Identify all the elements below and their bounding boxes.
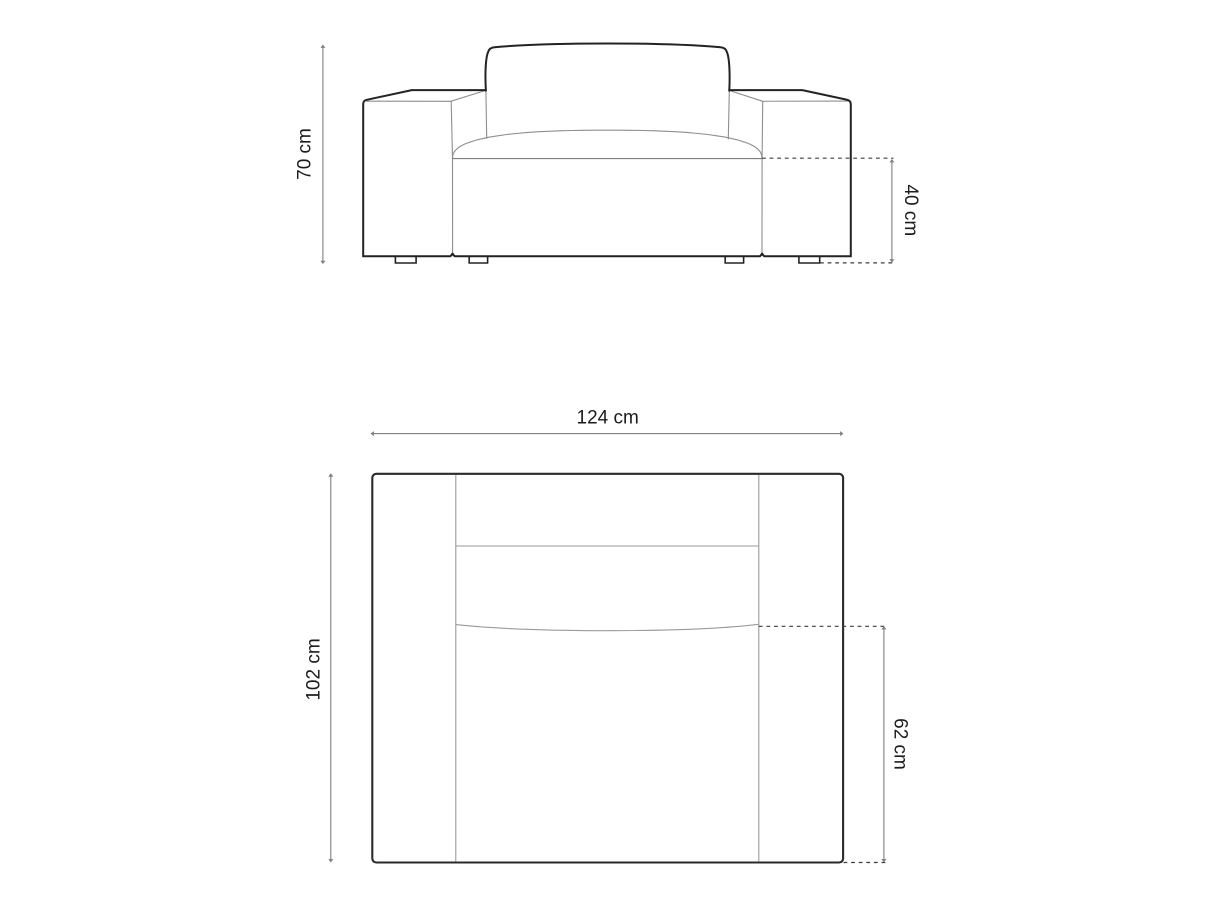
svg-text:102 cm: 102 cm — [303, 638, 324, 700]
svg-text:40 cm: 40 cm — [900, 184, 921, 236]
svg-text:62 cm: 62 cm — [889, 718, 910, 770]
svg-text:124 cm: 124 cm — [577, 408, 639, 429]
svg-text:70 cm: 70 cm — [294, 128, 315, 180]
